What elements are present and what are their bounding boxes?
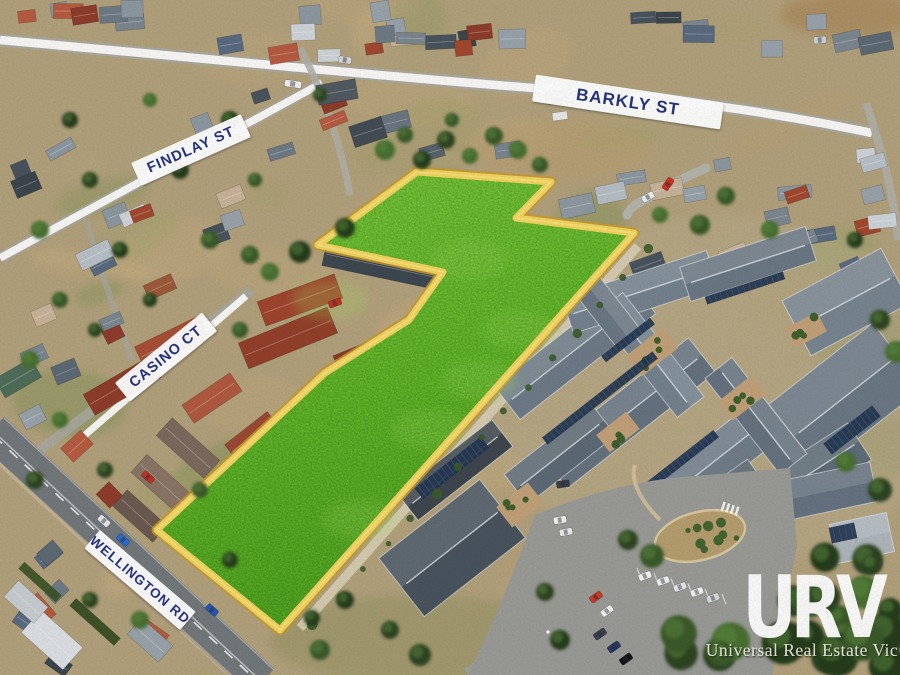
photo-grain-overlay: [0, 0, 900, 675]
aerial-photo: BARKLY ST FINDLAY ST CASINO CT WELLINGTO…: [0, 0, 900, 675]
